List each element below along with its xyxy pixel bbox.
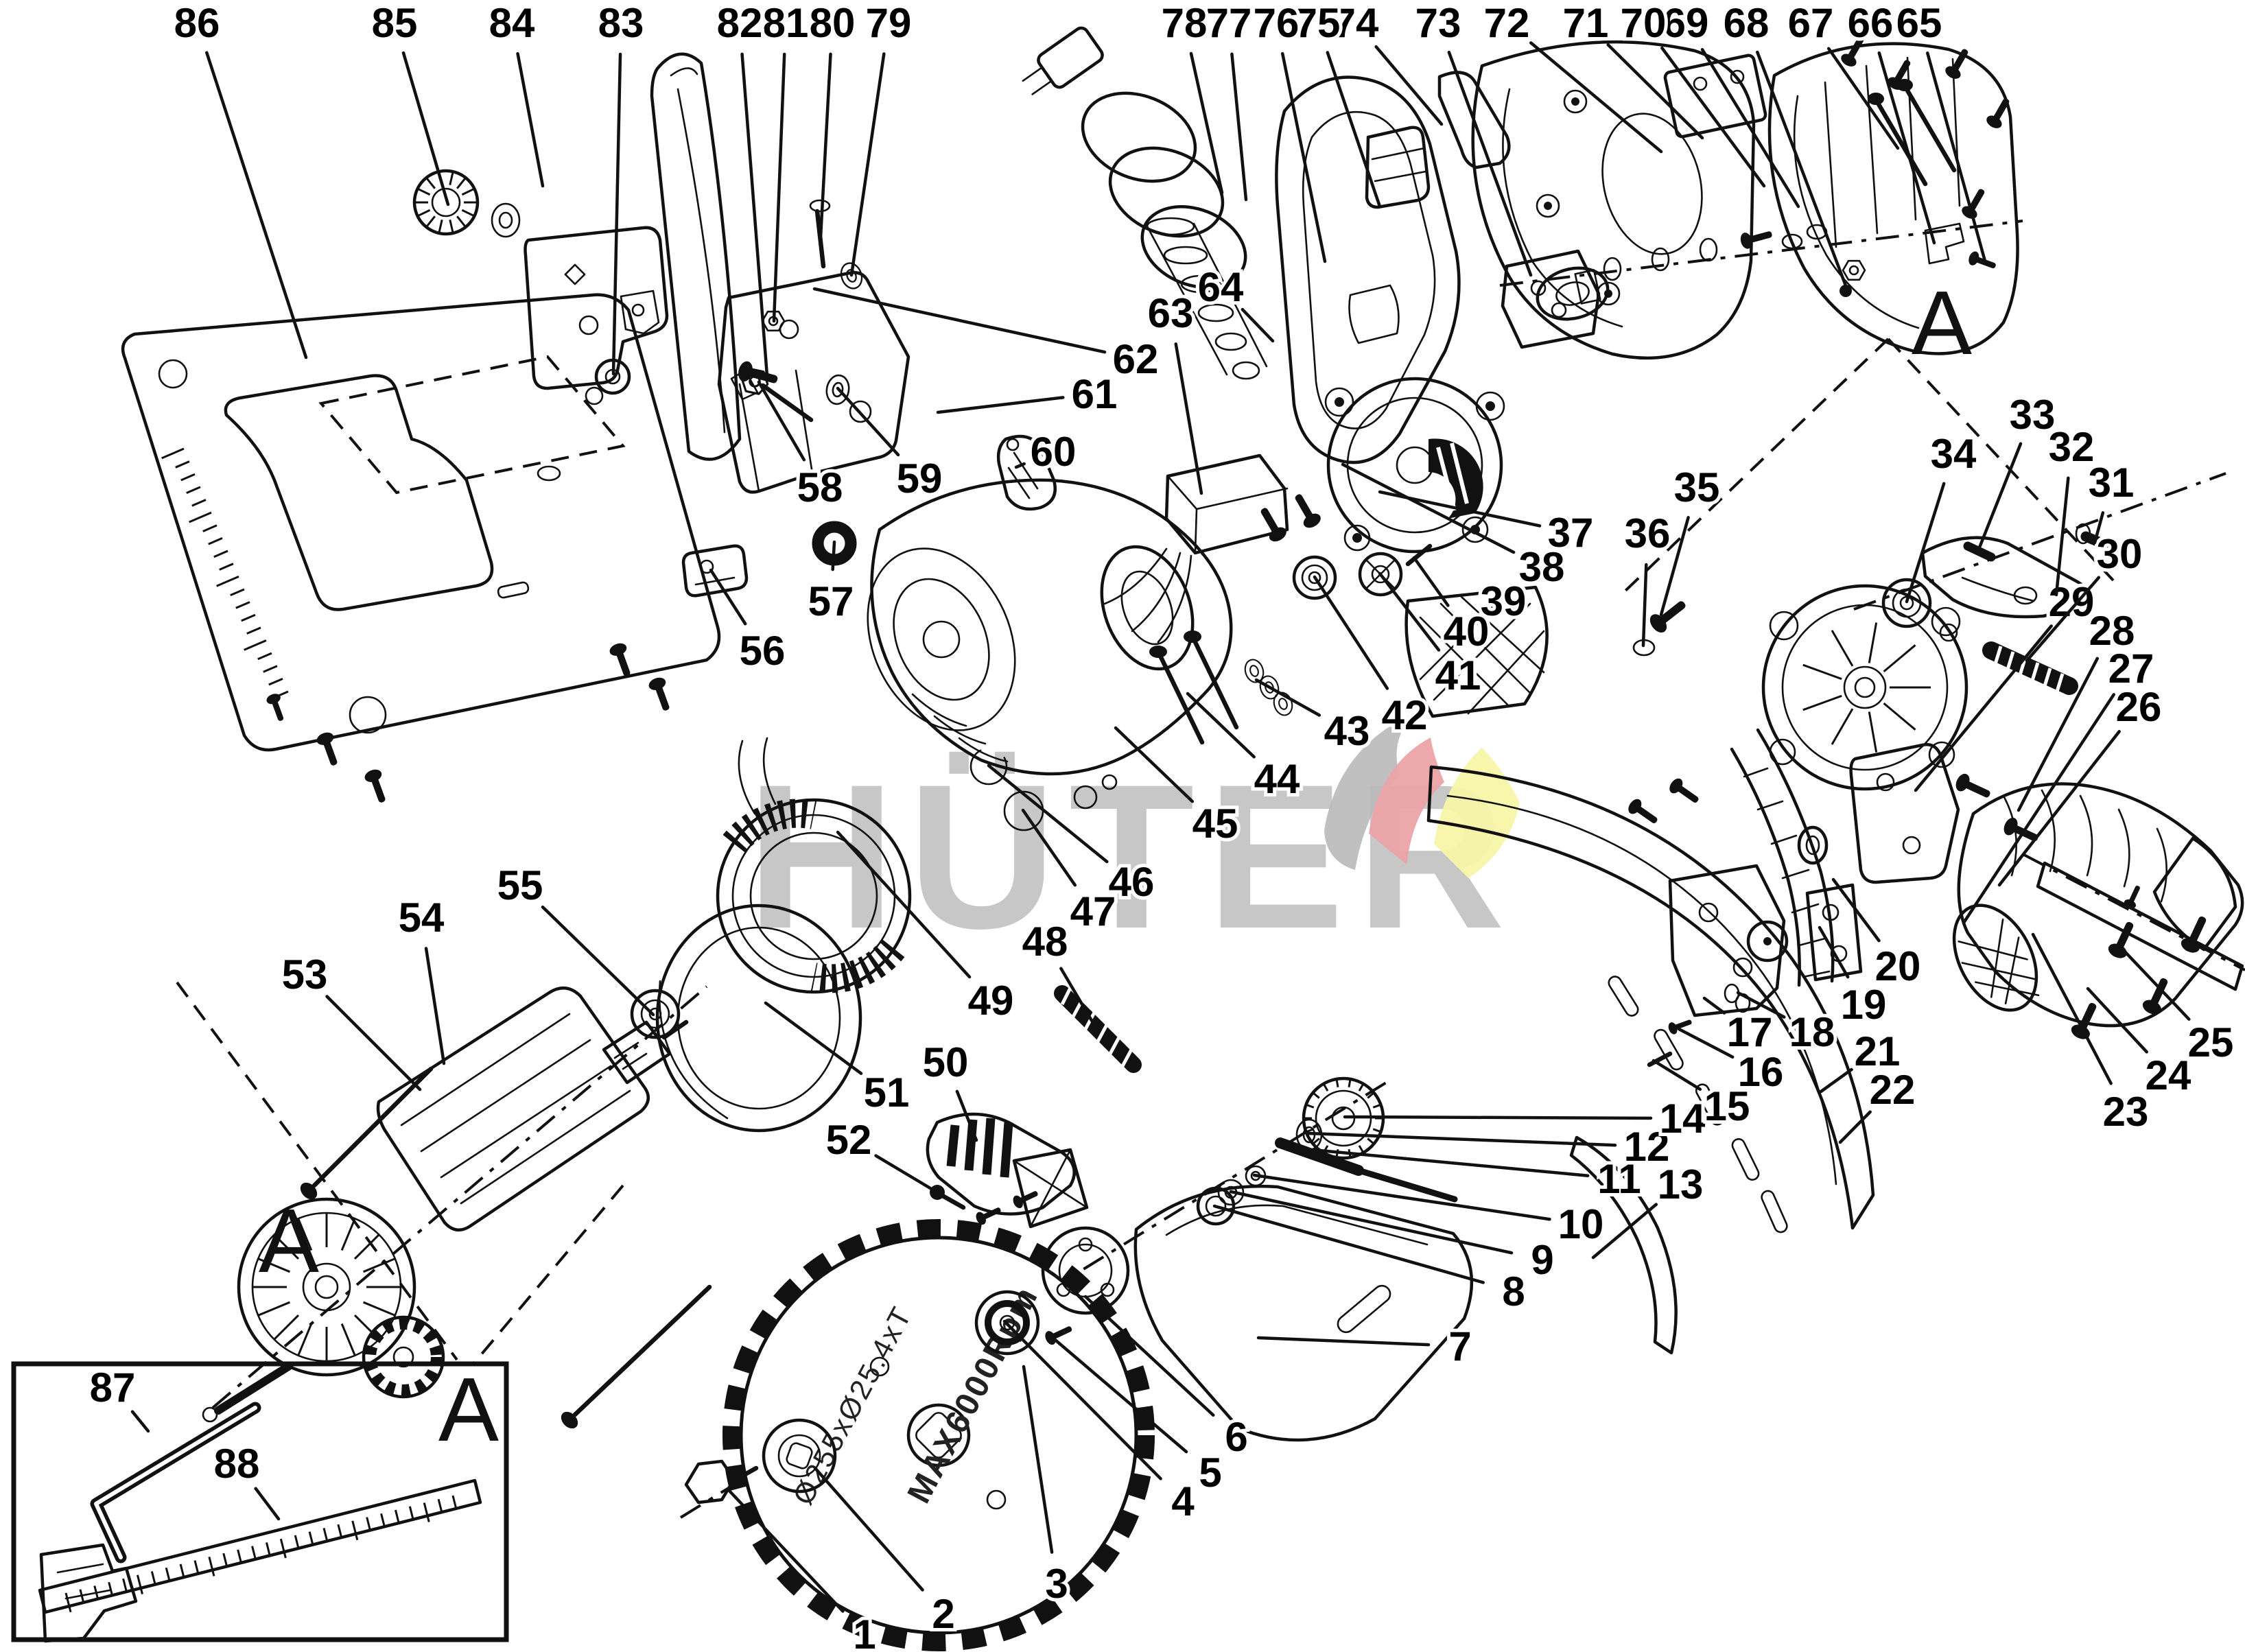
callout-label-62: 62 <box>1113 336 1159 382</box>
callout-label-63: 63 <box>1148 290 1194 336</box>
leader-line-71 <box>1608 45 1702 138</box>
leader-line-52 <box>875 1156 944 1196</box>
diagram-page: HÜTER <box>0 0 2245 1652</box>
callout-label-8: 8 <box>1502 1268 1525 1314</box>
diagram: HÜTER <box>0 0 2245 1652</box>
callout-label-3: 3 <box>1045 1561 1068 1607</box>
view-marker-1: A <box>1912 272 1972 373</box>
callout-label-50: 50 <box>923 1039 969 1085</box>
leader-line-21 <box>1821 1070 1852 1091</box>
callout-label-36: 36 <box>1625 510 1671 556</box>
callout-label-33: 33 <box>2010 392 2056 438</box>
leader-line-72 <box>1531 43 1661 152</box>
callout-label-2: 2 <box>932 1591 954 1637</box>
leader-line-67 <box>1829 49 1898 148</box>
callout-label-9: 9 <box>1531 1237 1553 1283</box>
callout-label-61: 61 <box>1072 371 1118 417</box>
callout-label-40: 40 <box>1444 609 1490 654</box>
baseplate-ruler-ticks <box>162 449 288 698</box>
leader-line-16 <box>1679 1029 1732 1057</box>
callout-label-42: 42 <box>1382 692 1428 738</box>
leader-line-86 <box>207 53 306 357</box>
callout-label-60: 60 <box>1031 429 1077 475</box>
leader-line-33 <box>1978 444 2021 551</box>
leader-line-55 <box>543 907 653 1015</box>
callout-label-75: 75 <box>1295 0 1341 46</box>
leader-line-84 <box>518 54 543 186</box>
leader-line-62 <box>814 289 1105 352</box>
callout-label-51: 51 <box>864 1070 910 1116</box>
miter-fence-drawing <box>414 54 865 460</box>
leader-line-17 <box>1704 998 1724 1013</box>
callout-label-86: 86 <box>174 0 220 46</box>
leader-line-78 <box>1191 54 1222 193</box>
leader-line-87 <box>132 1412 148 1431</box>
leader-line-88 <box>256 1489 279 1519</box>
leader-line-57 <box>833 542 834 569</box>
leader-line-73 <box>1449 52 1531 275</box>
callout-label-76: 76 <box>1254 0 1300 46</box>
leader-line-26 <box>1999 731 2119 885</box>
view-marker-3: A <box>438 1359 499 1460</box>
callout-label-70: 70 <box>1621 0 1667 46</box>
callout-label-23: 23 <box>2103 1089 2149 1135</box>
callout-label-30: 30 <box>2097 531 2143 577</box>
callout-label-44: 44 <box>1254 756 1300 802</box>
leader-line-54 <box>426 948 444 1063</box>
blade-drawing: Ø255xØ25.4xTMAX6000Rpm <box>681 1078 1393 1642</box>
callout-label-88: 88 <box>214 1441 260 1487</box>
callout-label-13: 13 <box>1658 1161 1704 1207</box>
callout-label-20: 20 <box>1875 943 1921 989</box>
callout-label-69: 69 <box>1663 0 1709 46</box>
callout-label-54: 54 <box>399 895 445 941</box>
callout-label-58: 58 <box>797 464 843 510</box>
callout-label-59: 59 <box>897 456 943 501</box>
callout-label-80: 80 <box>810 0 856 46</box>
callout-label-5: 5 <box>1199 1450 1221 1496</box>
leader-line-51 <box>766 1003 861 1074</box>
view-marker-2: A <box>259 1190 319 1291</box>
callout-label-66: 66 <box>1848 0 1894 46</box>
callout-label-10: 10 <box>1558 1201 1604 1247</box>
callout-label-81: 81 <box>763 0 809 46</box>
callout-label-35: 35 <box>1674 464 1720 510</box>
callout-label-64: 64 <box>1198 264 1244 310</box>
callout-label-45: 45 <box>1192 801 1238 847</box>
callout-label-83: 83 <box>598 0 644 46</box>
callout-label-49: 49 <box>968 978 1014 1024</box>
callout-label-68: 68 <box>1724 0 1770 46</box>
callout-label-72: 72 <box>1484 0 1530 46</box>
callout-label-16: 16 <box>1738 1049 1784 1095</box>
rear-handle-drawing <box>1851 744 2245 1041</box>
leader-line-7 <box>1258 1338 1429 1345</box>
leader-line-36 <box>1643 565 1646 646</box>
leader-line-83 <box>613 54 620 374</box>
leader-line-79 <box>851 54 884 275</box>
callout-label-73: 73 <box>1415 0 1461 46</box>
callout-label-25: 25 <box>2188 1019 2234 1065</box>
callout-label-55: 55 <box>497 862 543 908</box>
leader-line-58 <box>759 382 804 460</box>
callout-label-82: 82 <box>717 0 763 46</box>
callout-label-29: 29 <box>2049 579 2095 625</box>
callout-label-78: 78 <box>1162 0 1208 46</box>
callout-label-87: 87 <box>90 1365 136 1411</box>
callout-label-84: 84 <box>489 0 535 46</box>
callout-label-43: 43 <box>1324 708 1370 754</box>
fan-cover-blades <box>1803 622 1931 752</box>
callout-label-32: 32 <box>2049 424 2095 470</box>
callout-label-24: 24 <box>2146 1052 2191 1098</box>
leader-line-34 <box>1907 484 1944 602</box>
callout-label-57: 57 <box>808 578 854 624</box>
callout-label-47: 47 <box>1070 888 1116 934</box>
callout-label-48: 48 <box>1022 919 1068 965</box>
callout-label-1: 1 <box>853 1612 875 1652</box>
callout-label-7: 7 <box>1448 1323 1471 1369</box>
callout-label-77: 77 <box>1206 0 1252 46</box>
callout-label-34: 34 <box>1931 431 1977 477</box>
callout-label-6: 6 <box>1225 1414 1247 1460</box>
callout-label-28: 28 <box>2089 608 2135 654</box>
leader-line-75 <box>1328 53 1380 206</box>
leader-line-61 <box>938 397 1063 412</box>
callout-label-18: 18 <box>1789 1009 1835 1055</box>
leader-line-59 <box>838 388 898 455</box>
callout-label-31: 31 <box>2089 460 2135 506</box>
leader-line-41 <box>1380 574 1439 650</box>
fan-cover-drawing <box>1763 473 2226 789</box>
callout-label-65: 65 <box>1896 0 1942 46</box>
callout-label-85: 85 <box>372 0 418 46</box>
callout-label-14: 14 <box>1660 1096 1706 1142</box>
leader-line-77 <box>1232 54 1246 200</box>
callout-label-79: 79 <box>866 0 912 46</box>
callout-label-56: 56 <box>740 628 786 674</box>
callout-label-53: 53 <box>282 952 328 998</box>
inset-box <box>14 1364 506 1641</box>
callout-label-17: 17 <box>1727 1009 1773 1055</box>
leader-line-53 <box>327 997 420 1089</box>
leader-line-64 <box>1243 309 1273 341</box>
leader-line-81 <box>774 54 784 321</box>
leader-line-85 <box>403 53 448 204</box>
callout-label-4: 4 <box>1171 1478 1195 1524</box>
callout-label-67: 67 <box>1788 0 1834 46</box>
callout-label-41: 41 <box>1435 652 1481 698</box>
leader-line-82 <box>742 54 767 376</box>
callout-label-71: 71 <box>1563 0 1609 46</box>
leader-line-15 <box>1654 1061 1700 1089</box>
callout-label-52: 52 <box>826 1117 872 1163</box>
callout-label-22: 22 <box>1870 1067 1916 1113</box>
leader-line-14 <box>1345 1117 1651 1118</box>
